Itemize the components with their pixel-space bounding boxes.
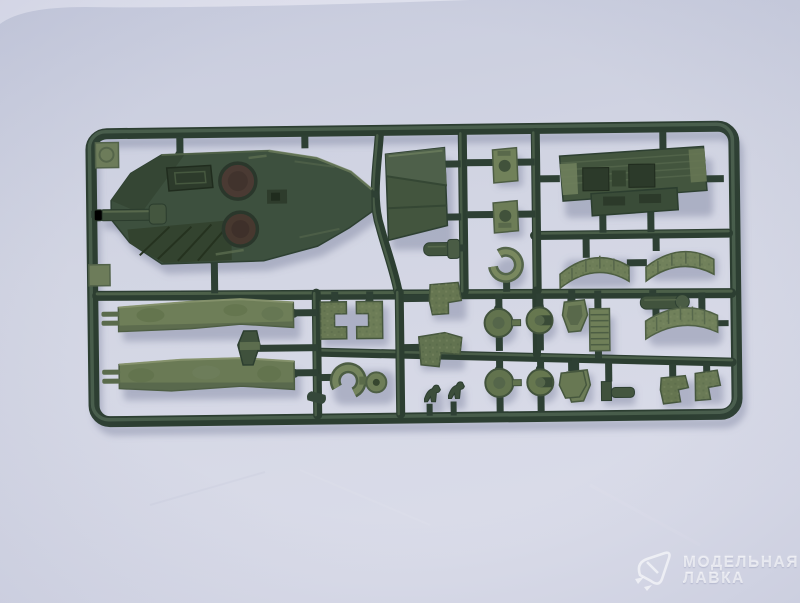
product-photo: МОДЕЛЬНАЯ ЛАВКА <box>0 0 800 603</box>
photo-vignette <box>0 0 800 603</box>
sprue-illustration <box>0 0 800 603</box>
